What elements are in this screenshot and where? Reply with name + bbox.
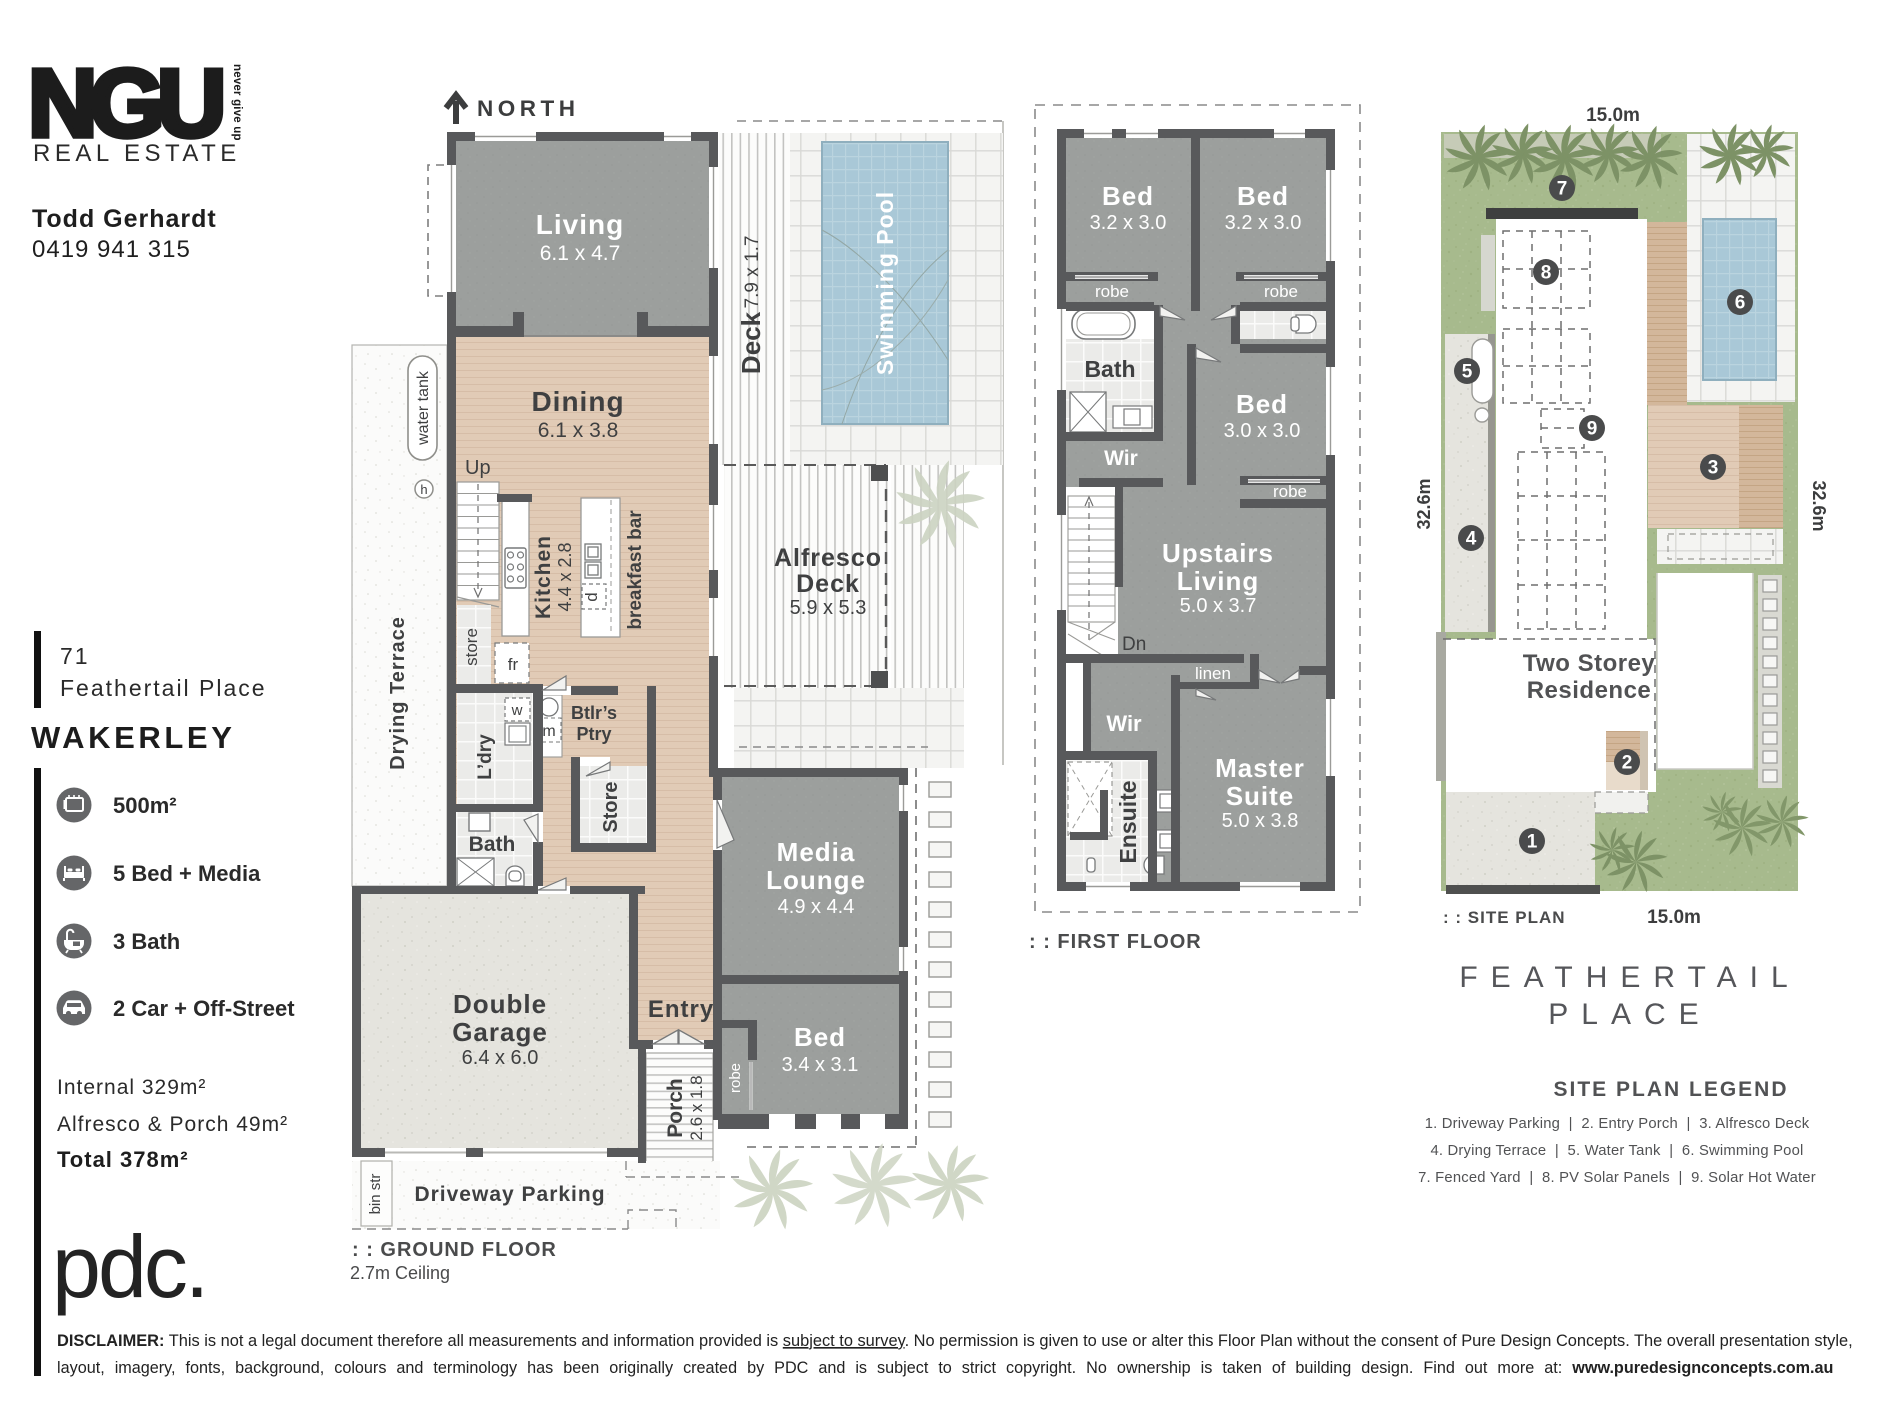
svg-text:32.6m: 32.6m — [1414, 478, 1434, 529]
svg-text:15.0m: 15.0m — [1586, 105, 1640, 126]
svg-text:6.1 x 4.7: 6.1 x 4.7 — [540, 242, 621, 265]
svg-text:Alfresco: Alfresco — [774, 544, 882, 572]
svg-text:robe: robe — [1095, 282, 1129, 301]
svg-text:Bed: Bed — [1102, 181, 1154, 211]
svg-text:7: 7 — [1557, 179, 1568, 200]
svg-text:Store: Store — [600, 781, 622, 832]
svg-text:3.2 x 3.0: 3.2 x 3.0 — [1090, 212, 1167, 234]
svg-text:Entry: Entry — [648, 996, 714, 1023]
svg-text:Bed: Bed — [794, 1022, 846, 1052]
svg-text:Media: Media — [777, 837, 856, 867]
svg-text:9: 9 — [1587, 419, 1598, 440]
svg-text:3.2 x 3.0: 3.2 x 3.0 — [1225, 212, 1302, 234]
svg-text:4: 4 — [1466, 529, 1477, 550]
svg-text:Feathertail Place: Feathertail Place — [60, 675, 267, 701]
svg-text:: : FIRST FLOOR: : : FIRST FLOOR — [1029, 931, 1202, 953]
svg-text:5.0 x 3.8: 5.0 x 3.8 — [1222, 810, 1299, 832]
svg-text:Total 378m²: Total 378m² — [57, 1147, 189, 1172]
svg-text:32.6m: 32.6m — [1809, 480, 1829, 531]
svg-text:fr: fr — [508, 655, 519, 674]
svg-text:L’dry: L’dry — [475, 734, 496, 780]
svg-text:: : SITE PLAN: : : SITE PLAN — [1443, 908, 1566, 927]
svg-text:Porch: Porch — [664, 1078, 687, 1138]
svg-text:71: 71 — [60, 643, 90, 669]
svg-text:8: 8 — [1541, 263, 1552, 284]
svg-text:4. Drying Terrace | 5. Water: 4. Drying Terrace | 5. Water Tank | 6. S… — [1430, 1143, 1803, 1159]
svg-text:1. Driveway Parking | 2. Ent: 1. Driveway Parking | 2. Entry Porch | 3… — [1425, 1116, 1810, 1132]
svg-text:store: store — [462, 628, 481, 666]
svg-text:NORTH: NORTH — [477, 96, 580, 121]
svg-text:1: 1 — [1527, 832, 1538, 853]
svg-text:4.4 x 2.8: 4.4 x 2.8 — [555, 542, 575, 611]
svg-text:SITE PLAN LEGEND: SITE PLAN LEGEND — [1553, 1078, 1788, 1101]
svg-text:DISCLAIMER: This is not a lega: DISCLAIMER: This is not a legal document… — [57, 1332, 1853, 1350]
svg-text:Bath: Bath — [469, 833, 516, 856]
svg-text:2 Car + Off-Street: 2 Car + Off-Street — [113, 996, 295, 1021]
svg-text:Internal 329m²: Internal 329m² — [57, 1076, 206, 1099]
svg-text:3: 3 — [1708, 458, 1719, 479]
svg-text:2: 2 — [1622, 753, 1633, 774]
svg-text:w: w — [511, 702, 523, 719]
svg-text:Drying Terrace: Drying Terrace — [387, 616, 409, 770]
svg-text:Swimming Pool: Swimming Pool — [872, 191, 898, 375]
svg-text:Todd Gerhardt: Todd Gerhardt — [32, 205, 217, 233]
svg-text:Kitchen: Kitchen — [532, 535, 555, 619]
svg-text:never give up: never give up — [231, 64, 243, 141]
svg-text:pdc.: pdc. — [52, 1217, 206, 1316]
svg-text:Residence: Residence — [1527, 677, 1652, 704]
svg-text:: : GROUND FLOOR: : : GROUND FLOOR — [352, 1239, 557, 1261]
svg-text:6: 6 — [1735, 293, 1746, 314]
svg-text:PLACE: PLACE — [1548, 998, 1711, 1031]
svg-text:Dn: Dn — [1122, 634, 1146, 655]
svg-text:500m²: 500m² — [113, 793, 177, 818]
svg-text:Dining: Dining — [531, 386, 624, 417]
svg-text:Deck: Deck — [796, 570, 860, 598]
svg-text:3 Bath: 3 Bath — [113, 929, 180, 954]
svg-text:Bed: Bed — [1236, 389, 1288, 419]
svg-text:Living: Living — [536, 209, 624, 240]
svg-text:h: h — [420, 482, 427, 497]
svg-text:2.7m Ceiling: 2.7m Ceiling — [350, 1263, 450, 1283]
svg-text:4.9 x 4.4: 4.9 x 4.4 — [778, 896, 855, 918]
svg-text:Wir: Wir — [1104, 447, 1138, 470]
svg-text:REAL ESTATE: REAL ESTATE — [33, 140, 241, 167]
svg-text:Driveway Parking: Driveway Parking — [414, 1183, 605, 1206]
svg-text:Living: Living — [1177, 566, 1260, 596]
svg-text:0419 941 315: 0419 941 315 — [32, 236, 191, 263]
svg-text:Bath: Bath — [1084, 356, 1135, 382]
svg-text:bin str: bin str — [367, 1174, 384, 1215]
svg-text:5.0 x 3.7: 5.0 x 3.7 — [1180, 595, 1257, 617]
svg-text:FEATHERTAIL: FEATHERTAIL — [1459, 961, 1800, 994]
svg-text:Ptry: Ptry — [576, 724, 611, 744]
svg-text:2.6 x 1.8: 2.6 x 1.8 — [687, 1075, 706, 1140]
svg-text:WAKERLEY: WAKERLEY — [31, 720, 235, 755]
svg-text:3.4 x 3.1: 3.4 x 3.1 — [782, 1054, 859, 1076]
svg-text:15.0m: 15.0m — [1647, 907, 1701, 928]
svg-text:linen: linen — [1195, 664, 1231, 683]
svg-text:5.9 x 5.3: 5.9 x 5.3 — [790, 597, 867, 619]
svg-text:Alfresco & Porch 49m²: Alfresco & Porch 49m² — [57, 1113, 288, 1136]
svg-text:Double: Double — [453, 989, 547, 1019]
svg-text:6.4 x 6.0: 6.4 x 6.0 — [462, 1047, 539, 1069]
svg-text:m: m — [542, 723, 555, 740]
svg-text:7.9 x 1.7: 7.9 x 1.7 — [742, 236, 763, 309]
svg-text:7. Fenced Yard | 8. PV Solar: 7. Fenced Yard | 8. PV Solar Panels | 9.… — [1418, 1170, 1816, 1186]
svg-text:Garage: Garage — [452, 1017, 548, 1047]
svg-text:layout, imagery, fonts, bac: layout, imagery, fonts, background, colo… — [57, 1359, 1833, 1377]
svg-text:water tank: water tank — [415, 370, 432, 446]
svg-text:robe: robe — [1264, 282, 1298, 301]
svg-text:Two Storey: Two Storey — [1523, 650, 1656, 677]
svg-text:Bed: Bed — [1237, 181, 1289, 211]
svg-text:Lounge: Lounge — [766, 865, 866, 895]
svg-text:Btlr’s: Btlr’s — [571, 703, 617, 723]
svg-text:Up: Up — [465, 457, 491, 479]
svg-text:5 Bed + Media: 5 Bed + Media — [113, 861, 261, 886]
svg-text:6.1 x 3.8: 6.1 x 3.8 — [538, 419, 619, 442]
svg-text:Deck: Deck — [736, 311, 766, 374]
svg-text:robe: robe — [727, 1063, 744, 1093]
svg-text:Wir: Wir — [1106, 711, 1142, 736]
svg-text:Upstairs: Upstairs — [1162, 538, 1274, 568]
svg-text:Master: Master — [1215, 753, 1305, 783]
svg-text:3.0 x 3.0: 3.0 x 3.0 — [1224, 420, 1301, 442]
svg-text:d: d — [582, 592, 601, 601]
svg-text:breakfast bar: breakfast bar — [625, 510, 646, 630]
svg-text:5: 5 — [1462, 362, 1473, 383]
svg-text:Ensuite: Ensuite — [1115, 780, 1141, 863]
svg-text:Suite: Suite — [1226, 781, 1295, 811]
